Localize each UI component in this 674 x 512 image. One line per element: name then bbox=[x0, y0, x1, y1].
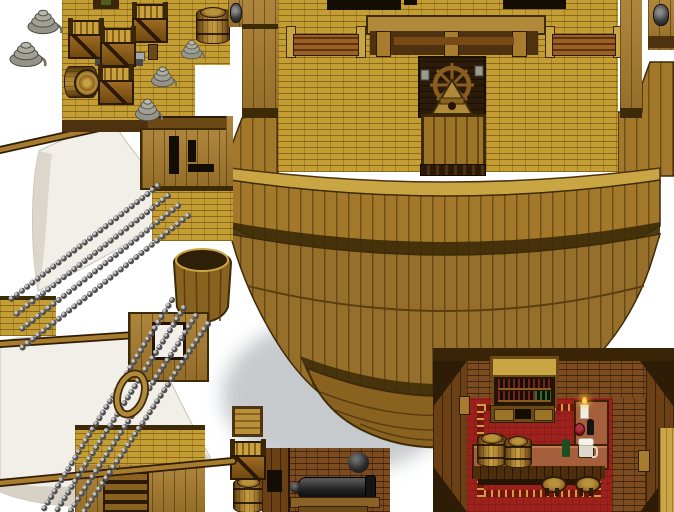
rigging-line bbox=[17, 205, 177, 331]
rigging-line bbox=[21, 215, 187, 347]
rigging-chains-layer bbox=[0, 0, 674, 512]
rigging-line bbox=[18, 206, 178, 332]
tileset-canvas bbox=[0, 0, 674, 512]
